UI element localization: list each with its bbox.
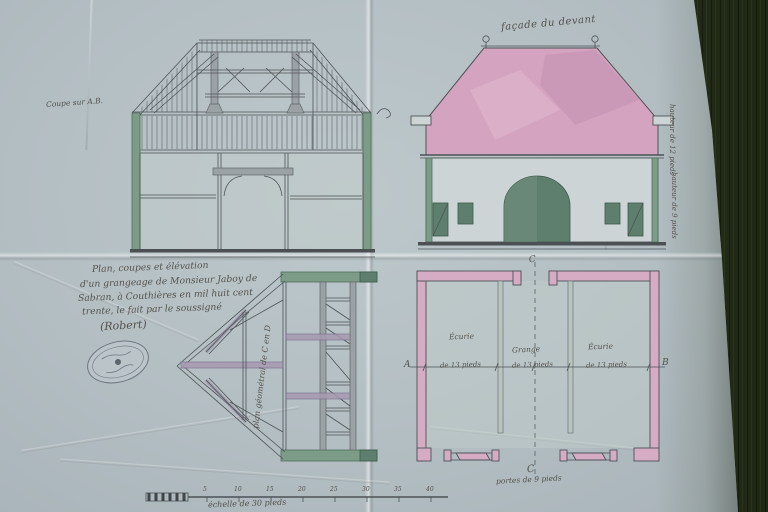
room-label-left: Écurie bbox=[449, 333, 474, 341]
scale-tick-number: 5 bbox=[203, 487, 207, 493]
axis-letter-top: C bbox=[529, 256, 537, 266]
scale-tick-number: 35 bbox=[394, 487, 402, 493]
front-elevation-drawing bbox=[411, 36, 673, 249]
scale-tick-number: 25 bbox=[330, 487, 338, 493]
scale-tick-number: 20 bbox=[298, 487, 306, 493]
dimension-segment-2: de 13 pieds bbox=[512, 361, 553, 369]
photo-stage: Coupe sur A.B. façade du devant hauteur … bbox=[0, 0, 768, 512]
elevation-height-note-top: hauteur de 12 pieds bbox=[668, 104, 675, 175]
dimension-segment-3: de 13 pieds bbox=[586, 361, 627, 369]
plan-partition-wall bbox=[568, 281, 573, 433]
scale-bar bbox=[146, 493, 448, 502]
elevation-height-note-bottom: hauteur de 9 pieds bbox=[670, 172, 677, 239]
dimension-letter-b: B bbox=[662, 359, 669, 368]
scale-tick-number: 30 bbox=[362, 487, 370, 493]
drawing-sheet: Coupe sur A.B. façade du devant hauteur … bbox=[0, 0, 768, 512]
scale-tick-number: 40 bbox=[426, 487, 434, 493]
elevation-window bbox=[605, 203, 620, 224]
scale-tick-number: 15 bbox=[266, 487, 274, 493]
scale-tick-number: 10 bbox=[234, 487, 242, 493]
roof-truss-drawing bbox=[177, 272, 377, 461]
elevation-window bbox=[458, 203, 473, 224]
room-label-center: Grange bbox=[512, 345, 540, 354]
cross-section-drawing bbox=[130, 40, 390, 257]
room-label-right: Écurie bbox=[588, 343, 613, 351]
dimension-letter-a: A bbox=[404, 361, 411, 370]
caption-signature: (Robert) bbox=[100, 319, 147, 332]
floor-plan-drawing bbox=[410, 262, 665, 478]
dimension-segment-1: de 13 pieds bbox=[440, 361, 481, 369]
ink-flourish bbox=[377, 109, 390, 118]
plan-partition-wall bbox=[498, 281, 503, 433]
archive-stamp bbox=[83, 335, 153, 390]
